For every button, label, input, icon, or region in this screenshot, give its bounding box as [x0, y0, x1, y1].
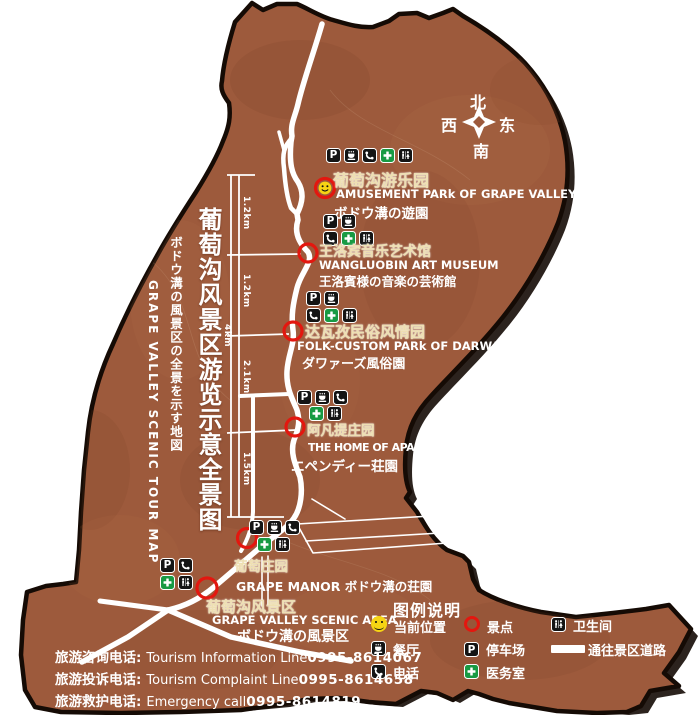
- parking-icon: P: [249, 520, 264, 535]
- side-road-2: [240, 394, 289, 396]
- toilet-icon: [551, 617, 566, 632]
- compass-west: 西: [441, 112, 457, 136]
- compass-east: 东: [499, 112, 515, 136]
- scenic-spot-icon: [464, 616, 480, 632]
- poi-scenic-area-name-ja: ボドウ溝の風景区: [237, 626, 349, 646]
- legend-current-position: 当前位置: [371, 616, 446, 636]
- poi-darwaz-name-ja: ダワァーズ風俗園: [302, 353, 405, 372]
- poi-darwaz-name-en: FOLK-CUSTOM PARk OF DARWAZ: [297, 339, 509, 353]
- grape-valley-tour-map: 葡萄沟风景区游览示意全景图 ボドウ溝の風景区の全景を示す地図 GRAPE VAL…: [0, 0, 700, 715]
- medical-icon: [464, 664, 479, 679]
- poi-amusement-name-en: AMUSEMENT PARk OF GRAPE VALLEY: [336, 187, 576, 201]
- distance-label: 1.2km: [241, 196, 251, 230]
- legend-toilet: 卫生间: [551, 616, 612, 635]
- poi-scenic-area-icons-row2: [160, 575, 193, 590]
- road-icon: [551, 645, 585, 653]
- parking-icon: P: [160, 558, 175, 573]
- toilet-icon: [178, 575, 193, 590]
- restaurant-icon: [315, 390, 330, 405]
- medical-icon: [380, 148, 395, 163]
- legend-scenic-spot: 景点: [464, 616, 513, 636]
- poi-darwaz-icons-row1: P: [306, 291, 339, 306]
- poi-manor-name-en: GRAPE MANOR ボドウ溝の荘園: [236, 576, 432, 595]
- poi-manor-icons-row2: [257, 537, 290, 552]
- poi-wangluobin-name-ja: 王洛賓様の音楽の芸術館: [319, 271, 457, 290]
- distance-label: 2.1km: [241, 360, 251, 394]
- legend-parking: P停车场: [464, 640, 525, 659]
- compass-north: 北: [470, 89, 486, 113]
- parking-icon: P: [326, 148, 341, 163]
- phone-icon: [333, 390, 348, 405]
- restaurant-icon: [267, 520, 282, 535]
- current-position-icon: [371, 616, 387, 632]
- poi-amusement-icons: P: [326, 148, 413, 163]
- map-title-zh: 葡萄沟风景区游览示意全景图: [191, 207, 226, 532]
- poi-scenic-area-icons-row1: P: [160, 558, 193, 573]
- poi-apandi-icons-row1: P: [297, 390, 348, 405]
- parking-icon: P: [306, 291, 321, 306]
- phone-icon: [285, 520, 300, 535]
- poi-manor-icons-row1: P: [249, 520, 300, 535]
- hotline-information: 旅游咨询电话: Tourism Information Line 0995-86…: [55, 646, 355, 666]
- phone-icon: [362, 148, 377, 163]
- map-title-ja: ボドウ溝の風景区の全景を示す地図: [166, 236, 185, 452]
- toilet-icon: [398, 148, 413, 163]
- poi-wangluobin-icons-row1: P: [323, 214, 356, 229]
- toilet-icon: [275, 537, 290, 552]
- restaurant-icon: [341, 214, 356, 229]
- parking-icon: P: [297, 390, 312, 405]
- restaurant-icon: [344, 148, 359, 163]
- medical-icon: [257, 537, 272, 552]
- poi-apandi-name-en: THE HOME OF APANDI: [308, 441, 435, 454]
- poi-wangluobin-name-en: WANGLUOBIN ART MUSEUM: [319, 258, 499, 272]
- phone-icon: [178, 558, 193, 573]
- map-title-en: GRAPE VALLEY SCENIC TOUR MAP: [146, 280, 160, 564]
- parking-icon: P: [464, 642, 479, 657]
- hotline-complaint: 旅游投诉电话: Tourism Complaint Line 0995-8614…: [55, 668, 355, 688]
- distance-label: 1.2km: [241, 274, 251, 308]
- legend-road: 通往景区道路: [551, 640, 666, 659]
- restaurant-icon: [324, 291, 339, 306]
- poi-apandi-name-zh: 阿凡提庄园: [307, 419, 375, 439]
- distance-total-label: 4km: [222, 324, 232, 347]
- parking-icon: P: [323, 214, 338, 229]
- legend-medical: 医务室: [464, 663, 525, 682]
- hotline-emergency: 旅游救护电话: Emergency call 0995-8614819: [55, 690, 355, 710]
- compass-south: 南: [473, 138, 489, 162]
- poi-manor-name-zh: 葡萄庄园: [234, 555, 288, 575]
- medical-icon: [160, 575, 175, 590]
- poi-scenic-area-name-en: GRAPE VALLEY SCENIC AREA: [212, 613, 397, 627]
- poi-apandi-name-ja: エペンディー荘園: [291, 455, 398, 475]
- distance-label: 1.5km: [241, 452, 251, 486]
